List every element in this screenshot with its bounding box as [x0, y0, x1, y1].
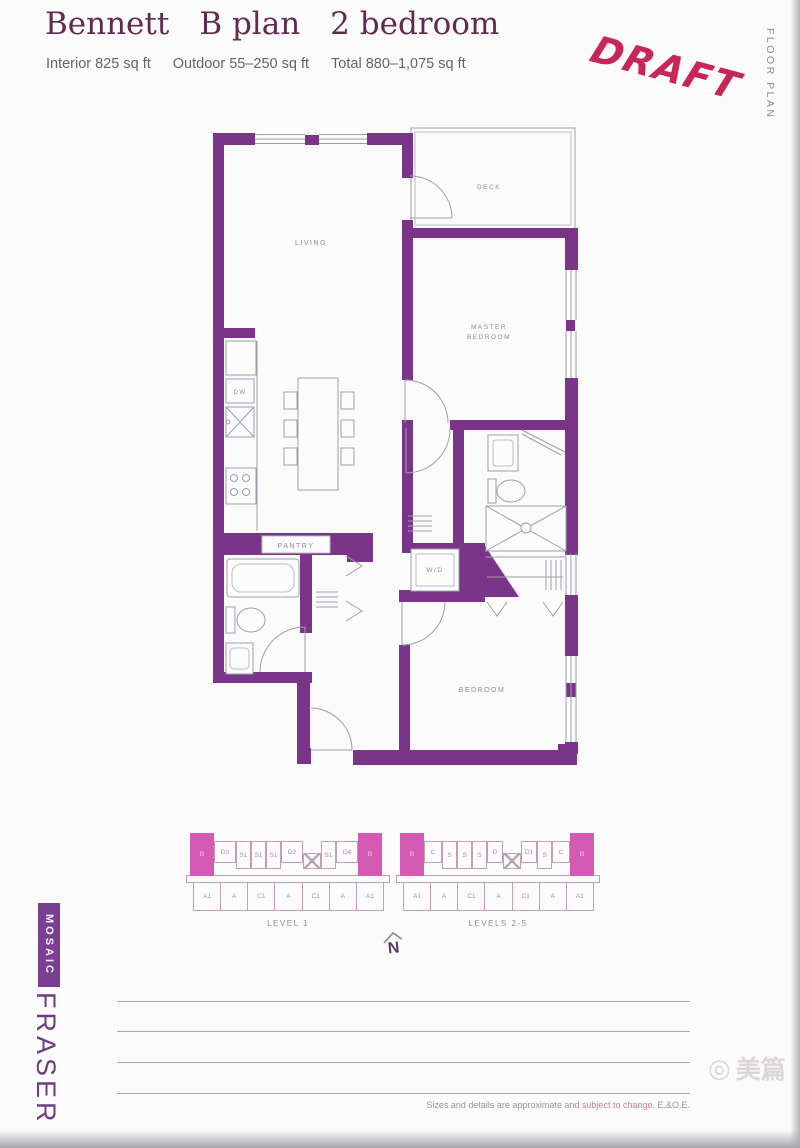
- plan-type: 2 bedroom: [330, 6, 499, 42]
- levels-2-5-bottom-row: A1AC1AC1AA1: [403, 882, 593, 911]
- photo-edge-right: [790, 0, 800, 1148]
- building-core-cell: [503, 853, 521, 869]
- watermark: ◎ 美篇: [708, 1050, 786, 1086]
- level-1-label: LEVEL 1: [190, 919, 386, 928]
- disclaimer-text: Sizes and details are approximate and su…: [426, 1100, 690, 1110]
- note-line: [117, 1062, 690, 1063]
- unit-cell: C1: [302, 882, 330, 911]
- levels-2-5-top-row: BCSSSDD1SCB: [400, 833, 596, 876]
- unit-cell: B: [570, 833, 594, 876]
- watermark-text: 美篇: [736, 1050, 786, 1086]
- unit-cell: D: [487, 841, 503, 863]
- interior-area: Interior 825 sq ft: [46, 56, 151, 72]
- north-letter: N: [378, 942, 409, 955]
- unit-cell: A1: [356, 882, 384, 911]
- outdoor-area: Outdoor 55–250 sq ft: [173, 56, 309, 72]
- room-label-living: LIVING: [295, 240, 327, 247]
- level-1-bottom-row: A1AC1AC1AA1: [193, 882, 383, 911]
- unit-cell: C1: [247, 882, 275, 911]
- photo-edge-bottom: [0, 1130, 800, 1148]
- level-1-corridor: [186, 875, 390, 883]
- unit-cell: S1: [321, 841, 336, 869]
- building-core-cell: [303, 853, 321, 869]
- unit-cell: S: [472, 841, 487, 869]
- disclaimer-part-3: E.&O.E.: [655, 1100, 690, 1110]
- page-title: BennettB plan2 bedroom: [45, 6, 529, 42]
- level-1-top-row: BD3S1S1S1D2S1D4B: [190, 833, 386, 876]
- unit-cell: A: [274, 882, 302, 911]
- unit-cell: S: [537, 841, 552, 869]
- unit-cell: B: [190, 833, 214, 876]
- levels-2-5-corridor: [396, 875, 600, 883]
- unit-cell: C: [552, 841, 570, 863]
- unit-cell: C1: [457, 882, 485, 911]
- watermark-logo-icon: ◎: [708, 1053, 731, 1084]
- deck-outline: [411, 128, 575, 229]
- draft-stamp: DRAFT: [581, 27, 751, 110]
- room-label-wd: W/D: [426, 567, 443, 574]
- unit-cell: D2: [281, 841, 303, 863]
- disclaimer-part-2: subject to change.: [582, 1100, 655, 1110]
- unit-cell: A: [484, 882, 512, 911]
- room-label-master-1: MASTER: [471, 324, 507, 331]
- unit-cell: A: [430, 882, 458, 911]
- unit-cell: D1: [521, 841, 537, 863]
- room-label-dw: DW: [234, 390, 247, 396]
- unit-cell: S: [457, 841, 472, 869]
- unit-cell: B: [400, 833, 424, 876]
- area-stats: Interior 825 sq ftOutdoor 55–250 sq ftTo…: [46, 56, 488, 72]
- plan-letter: B plan: [199, 6, 300, 42]
- unit-cell: D3: [214, 841, 236, 863]
- note-line: [117, 1093, 690, 1094]
- room-label-bedroom: BEDROOM: [459, 687, 506, 694]
- unit-cell: A: [539, 882, 567, 911]
- level-key-diagrams: BD3S1S1S1D2S1D4B A1AC1AC1AA1 LEVEL 1 BCS…: [190, 833, 596, 928]
- room-label-master-2: BEDROOM: [467, 334, 511, 341]
- ensuite-fixtures: [486, 435, 566, 551]
- unit-cell: A: [329, 882, 357, 911]
- unit-cell: A1: [193, 882, 221, 911]
- walls: [213, 133, 578, 765]
- north-indicator: N: [377, 928, 409, 955]
- room-label-deck: DECK: [477, 184, 501, 191]
- total-area: Total 880–1,075 sq ft: [331, 56, 466, 72]
- room-label-pantry: PANTRY: [278, 543, 315, 550]
- floor-plan-drawing: LIVING DECK MASTER BEDROOM BEDROOM PANTR…: [200, 118, 590, 778]
- unit-cell: S1: [251, 841, 266, 869]
- floor-plan-page: BennettB plan2 bedroom Interior 825 sq f…: [0, 0, 800, 1148]
- floor-plan-side-label: FLOOR PLAN: [764, 28, 776, 120]
- unit-cell: A1: [403, 882, 431, 911]
- note-line: [117, 1031, 690, 1032]
- note-line: [117, 1001, 690, 1002]
- unit-cell: B: [358, 833, 382, 876]
- disclaimer-part-1: Sizes and details are approximate and: [426, 1100, 582, 1110]
- unit-cell: A: [220, 882, 248, 911]
- unit-cell: S: [442, 841, 457, 869]
- level-1-diagram: BD3S1S1S1D2S1D4B A1AC1AC1AA1 LEVEL 1: [190, 833, 386, 928]
- unit-cell: S1: [236, 841, 251, 869]
- unit-cell: C: [424, 841, 442, 863]
- unit-cell: C1: [512, 882, 540, 911]
- levels-2-5-label: LEVELS 2-5: [400, 919, 596, 928]
- plan-name: Bennett: [45, 6, 169, 42]
- levels-2-5-diagram: BCSSSDD1SCB A1AC1AC1AA1 LEVELS 2-5: [400, 833, 596, 928]
- unit-cell: S1: [266, 841, 281, 869]
- room-labels: LIVING DECK MASTER BEDROOM BEDROOM PANTR…: [234, 184, 512, 694]
- unit-cell: D4: [336, 841, 358, 863]
- mosaic-logo: MOSAIC: [38, 903, 60, 987]
- unit-cell: A1: [566, 882, 594, 911]
- kitchen-fixtures: [226, 341, 354, 531]
- fraser-logo: FRASER: [30, 992, 61, 1126]
